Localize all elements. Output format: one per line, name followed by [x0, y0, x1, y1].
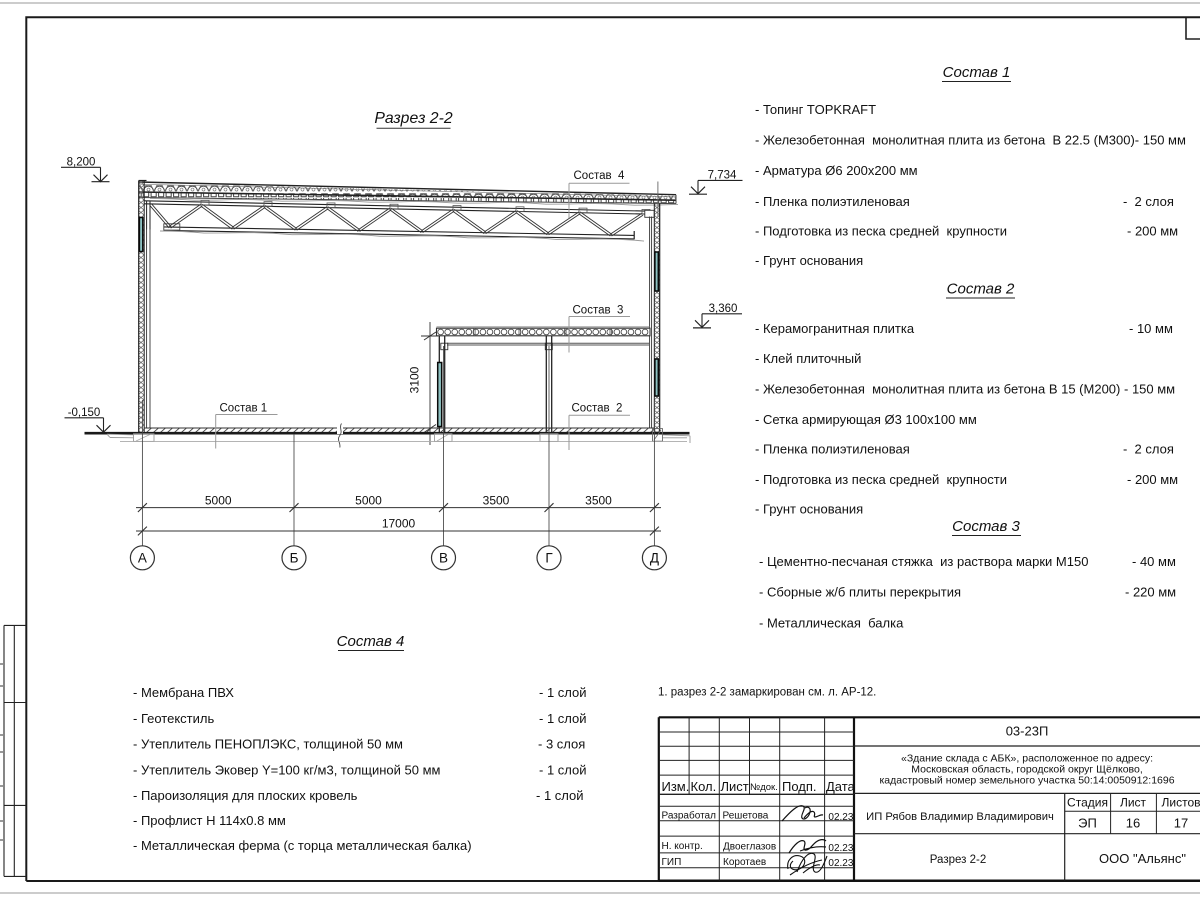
svg-text:- Керамогранитная плитка: - Керамогранитная плитка — [755, 321, 915, 336]
svg-text:- Сборные ж/б плиты перекрытия: - Сборные ж/б плиты перекрытия — [759, 585, 961, 600]
svg-text:- Пароизоляция для плоских кро: - Пароизоляция для плоских кровель — [133, 788, 358, 803]
svg-text:Н. контр.: Н. контр. — [662, 841, 703, 852]
svg-text:- 3 слоя: - 3 слоя — [538, 737, 585, 752]
svg-text:- 40 мм: - 40 мм — [1132, 554, 1176, 569]
svg-text:1. разрез 2-2 замаркирован см.: 1. разрез 2-2 замаркирован см. л. АР-12. — [658, 687, 876, 699]
svg-text:- 10 мм: - 10 мм — [1129, 321, 1173, 336]
svg-text:- 200 мм: - 200 мм — [1127, 224, 1178, 239]
svg-text:Состав 3: Состав 3 — [952, 518, 1020, 535]
svg-text:03-23П: 03-23П — [1006, 724, 1049, 739]
svg-text:Лист: Лист — [721, 779, 749, 794]
svg-text:- Утеплитель Эковер Y=100 кг/м: - Утеплитель Эковер Y=100 кг/м3, толщино… — [133, 763, 441, 778]
svg-text:- Железобетонная монолитная п: - Железобетонная монолитная плита из бет… — [755, 133, 1186, 148]
svg-text:Решетова: Решетова — [723, 811, 769, 822]
svg-text:- 220 мм: - 220 мм — [1125, 585, 1176, 600]
svg-text:3,360: 3,360 — [709, 303, 738, 315]
svg-text:Дата: Дата — [826, 779, 856, 794]
svg-text:5000: 5000 — [205, 494, 232, 508]
svg-text:А: А — [138, 551, 147, 566]
svg-text:- 2 слоя: - 2 слоя — [1123, 194, 1174, 209]
svg-text:ООО "Альянс": ООО "Альянс" — [1099, 851, 1186, 866]
svg-text:17000: 17000 — [382, 517, 416, 531]
svg-text:- 1 слой: - 1 слой — [539, 763, 587, 778]
svg-text:- 1 слой: - 1 слой — [539, 685, 587, 700]
svg-text:Состав 3: Состав 3 — [573, 305, 624, 317]
svg-text:Д: Д — [650, 551, 659, 566]
svg-text:- Сетка армирующая Ø3 100х100: - Сетка армирующая Ø3 100х100 мм — [755, 412, 977, 427]
svg-text:Стадия: Стадия — [1067, 796, 1108, 810]
svg-text:Состав 1: Состав 1 — [943, 64, 1011, 81]
svg-text:- 1 слой: - 1 слой — [539, 711, 587, 726]
svg-text:- Клей плиточный: - Клей плиточный — [755, 351, 861, 366]
svg-text:Состав 2: Состав 2 — [572, 403, 623, 415]
svg-text:Разрез 2-2: Разрез 2-2 — [374, 110, 452, 127]
svg-text:- Геотекстиль: - Геотекстиль — [133, 711, 214, 726]
svg-text:ИП Рябов Владимир Владимирович: ИП Рябов Владимир Владимирович — [866, 811, 1054, 823]
svg-text:3500: 3500 — [585, 494, 612, 508]
svg-text:ГИП: ГИП — [662, 857, 682, 868]
svg-text:ЭП: ЭП — [1078, 816, 1097, 831]
svg-text:Изм.: Изм. — [662, 779, 690, 794]
svg-text:- Подготовка из песка средней: - Подготовка из песка средней крупности — [755, 224, 1007, 239]
svg-text:7,734: 7,734 — [708, 170, 737, 182]
svg-text:- Металлическая ферма (с торца: - Металлическая ферма (с торца металличе… — [133, 838, 472, 853]
svg-text:Кол.: Кол. — [691, 779, 717, 794]
svg-text:- Цементно-песчаная стяжка из: - Цементно-песчаная стяжка из раствора м… — [759, 554, 1088, 569]
svg-text:02.23: 02.23 — [828, 812, 853, 823]
svg-text:- Грунт основания: - Грунт основания — [755, 502, 863, 517]
svg-text:- Пленка полиэтиленовая: - Пленка полиэтиленовая — [755, 442, 910, 457]
svg-text:Состав 2: Состав 2 — [947, 281, 1015, 298]
svg-text:- Мембрана ПВХ: - Мембрана ПВХ — [133, 685, 234, 700]
svg-text:Состав 4: Состав 4 — [337, 633, 405, 650]
svg-text:8,200: 8,200 — [67, 157, 96, 169]
svg-text:Б: Б — [290, 551, 299, 566]
svg-text:- 150 мм: - 150 мм — [1124, 382, 1175, 397]
svg-text:02.23: 02.23 — [828, 843, 853, 854]
svg-text:- 200 мм: - 200 мм — [1127, 472, 1178, 487]
svg-text:Листов: Листов — [1162, 796, 1200, 810]
svg-text:Состав 1: Состав 1 — [220, 403, 268, 415]
svg-text:3500: 3500 — [483, 494, 510, 508]
svg-text:- Грунт основания: - Грунт основания — [755, 253, 863, 268]
svg-text:- Утеплитель ПЕНОПЛЭКС, толщин: - Утеплитель ПЕНОПЛЭКС, толщиной 50 мм — [133, 737, 403, 752]
svg-text:- Пленка полиэтиленовая: - Пленка полиэтиленовая — [755, 194, 910, 209]
svg-text:3100: 3100 — [408, 366, 422, 393]
svg-text:- Железобетонная монолитная п: - Железобетонная монолитная плита из бет… — [755, 382, 1120, 397]
svg-text:- Арматура Ø6 200х200 мм: - Арматура Ø6 200х200 мм — [755, 163, 918, 178]
svg-text:- Топинг TOPKRAFT: - Топинг TOPKRAFT — [755, 102, 876, 117]
svg-text:17: 17 — [1174, 816, 1188, 831]
svg-text:Разрез 2-2: Разрез 2-2 — [930, 854, 986, 866]
svg-text:В: В — [439, 551, 448, 566]
svg-text:Г: Г — [545, 551, 553, 566]
svg-text:Разработал: Разработал — [662, 810, 717, 822]
svg-text:- Металлическая балка: - Металлическая балка — [759, 616, 904, 631]
svg-text:16: 16 — [1126, 816, 1140, 831]
svg-text:- Профлист Н 114х0.8 мм: - Профлист Н 114х0.8 мм — [133, 813, 286, 828]
svg-text:- 2 слоя: - 2 слоя — [1123, 442, 1174, 457]
svg-text:Состав 4: Состав 4 — [574, 170, 625, 182]
svg-text:№док.: №док. — [750, 782, 778, 793]
svg-text:- Подготовка из песка средней: - Подготовка из песка средней крупности — [755, 472, 1007, 487]
svg-text:- 1 слой: - 1 слой — [536, 788, 584, 803]
svg-text:Подп.: Подп. — [782, 779, 817, 794]
svg-text:5000: 5000 — [355, 494, 382, 508]
svg-text:кадастровый номер земельного у: кадастровый номер земельного участка 50:… — [879, 775, 1174, 787]
svg-text:Коротаев: Коротаев — [723, 857, 766, 868]
svg-text:Двоеглазов: Двоеглазов — [723, 841, 776, 852]
svg-text:Лист: Лист — [1120, 796, 1147, 810]
svg-text:-0,150: -0,150 — [68, 407, 101, 419]
svg-text:02.23: 02.23 — [828, 858, 853, 869]
